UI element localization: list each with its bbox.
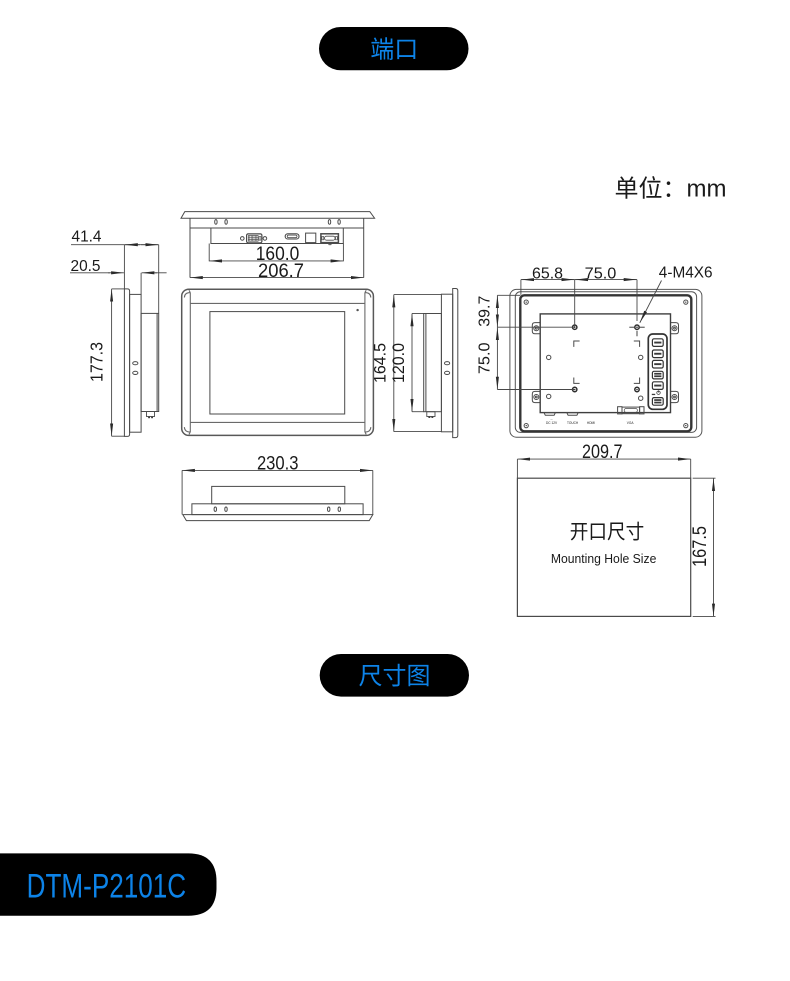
- svg-text:VGA: VGA: [627, 421, 635, 425]
- svg-text:39.7: 39.7: [477, 296, 494, 327]
- svg-text:HDMI: HDMI: [587, 421, 595, 425]
- svg-text:167.5: 167.5: [690, 526, 711, 567]
- svg-text:177.3: 177.3: [87, 342, 107, 382]
- svg-text:端口: 端口: [370, 36, 418, 63]
- svg-text:209.7: 209.7: [582, 442, 623, 463]
- svg-text:75.0: 75.0: [477, 342, 494, 374]
- svg-text:4-M4X6: 4-M4X6: [659, 264, 713, 281]
- svg-text:DTM-P2101C: DTM-P2101C: [27, 867, 187, 905]
- svg-text:164.5: 164.5: [372, 343, 390, 383]
- svg-text:单位：mm: 单位：mm: [615, 176, 727, 203]
- svg-text:TOUCH: TOUCH: [567, 421, 579, 425]
- svg-text:Mounting Hole Size: Mounting Hole Size: [551, 551, 657, 566]
- svg-text:DC 12V: DC 12V: [546, 421, 558, 425]
- svg-text:65.8: 65.8: [532, 265, 563, 282]
- svg-text:⎓: ⎓: [551, 419, 553, 422]
- svg-text:75.0: 75.0: [585, 265, 617, 282]
- svg-text:尺寸图: 尺寸图: [359, 663, 431, 690]
- svg-text:230.3: 230.3: [257, 454, 299, 475]
- svg-text:206.7: 206.7: [258, 261, 304, 282]
- svg-text:41.4: 41.4: [72, 229, 102, 246]
- svg-text:120.0: 120.0: [390, 343, 408, 383]
- svg-text:开口尺寸: 开口尺寸: [570, 520, 645, 543]
